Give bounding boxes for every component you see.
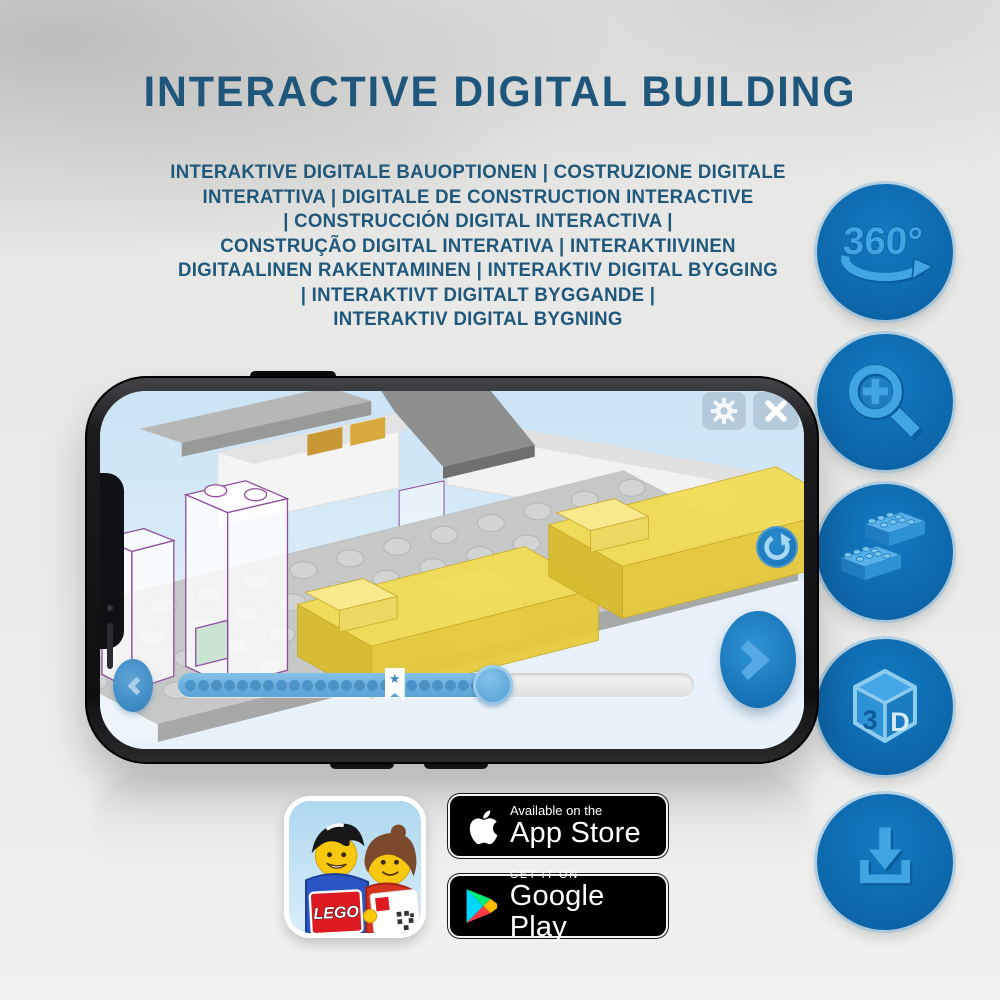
previous-step-button[interactable] xyxy=(113,659,153,712)
cube-face-3: 3 xyxy=(862,705,877,735)
chevron-left-icon xyxy=(122,673,144,699)
progress-dot xyxy=(458,680,469,691)
progress-dot xyxy=(185,680,196,691)
rotate-arrow-icon xyxy=(762,532,792,562)
subtitle-line: | CONSTRUCCIÓN DIGITAL INTERACTIVA | xyxy=(10,210,947,235)
earpiece-speaker xyxy=(107,623,113,669)
front-camera xyxy=(107,605,113,611)
progress-dot xyxy=(276,680,287,691)
progress-dot xyxy=(445,680,456,691)
badge-store-name: Google Play xyxy=(510,881,652,942)
progress-dot xyxy=(354,680,365,691)
progress-dot xyxy=(328,680,339,691)
settings-button[interactable] xyxy=(701,391,747,431)
progress-dot xyxy=(198,680,209,691)
subtitle-line: INTERATTIVA | DIGITALE DE CONSTRUCTION I… xyxy=(10,186,947,211)
phone-notch xyxy=(100,473,124,649)
progress-knob[interactable] xyxy=(473,665,513,705)
progress-dot xyxy=(250,680,261,691)
next-step-button[interactable] xyxy=(720,611,796,708)
progress-dot xyxy=(341,680,352,691)
close-button[interactable] xyxy=(752,391,800,431)
360-rotation-icon: 360° xyxy=(833,200,937,304)
close-icon xyxy=(764,399,788,423)
progress-dot xyxy=(302,680,313,691)
badge-store-name: App Store xyxy=(510,818,641,848)
subtitle-line: INTERAKTIVE DIGITALE BAUOPTIONEN | COSTR… xyxy=(10,161,947,186)
feature-download xyxy=(817,794,953,930)
build-progress-bar[interactable]: ★ xyxy=(178,673,694,697)
app-store-badge[interactable]: Available on the App Store xyxy=(448,794,668,858)
download-icon xyxy=(837,814,933,910)
chevron-right-icon xyxy=(738,634,778,686)
feature-3d: 3 D xyxy=(817,639,953,775)
cube-face-d: D xyxy=(890,707,910,737)
progress-dot xyxy=(211,680,222,691)
subtitle-line: | INTERAKTIVT DIGITALT BYGGANDE | xyxy=(10,284,947,309)
progress-dot xyxy=(432,680,443,691)
google-play-badge[interactable]: GET IT ON Google Play xyxy=(448,874,668,938)
progress-dot xyxy=(419,680,430,691)
marketing-page: INTERACTIVE DIGITAL BUILDING INTERAKTIVE… xyxy=(0,0,1000,1000)
360-label: 360° xyxy=(842,220,924,263)
lego-logo: LEGO xyxy=(313,903,360,923)
subtitle-line: INTERAKTIV DIGITAL BYGNING xyxy=(10,308,947,333)
progress-dot xyxy=(406,680,417,691)
gear-icon xyxy=(711,398,737,424)
lego-app-icon: LEGO xyxy=(284,796,426,938)
feature-bricks xyxy=(817,484,953,620)
google-play-logo-icon xyxy=(464,885,498,927)
minifigures-illustration: LEGO xyxy=(289,801,421,933)
progress-dot xyxy=(263,680,274,691)
subtitle-line: CONSTRUÇÃO DIGITAL INTERATIVA | INTERAKT… xyxy=(10,235,947,260)
progress-dot xyxy=(315,680,326,691)
progress-dot xyxy=(237,680,248,691)
app-screen: ★ xyxy=(100,391,804,749)
apple-logo-icon xyxy=(464,804,498,848)
badge-tagline: Available on the xyxy=(510,804,641,818)
feature-zoom xyxy=(817,334,953,470)
rotate-model-button[interactable] xyxy=(756,526,798,568)
page-title: INTERACTIVE DIGITAL BUILDING xyxy=(20,68,980,117)
feature-360-rotation: 360° xyxy=(817,184,953,320)
3d-cube-icon: 3 D xyxy=(835,657,935,757)
smartphone: ★ xyxy=(85,376,819,764)
progress-dot xyxy=(224,680,235,691)
stacking-bricks-icon xyxy=(835,502,935,602)
progress-dot xyxy=(367,680,378,691)
subtitle-line: DIGITAALINEN RAKENTAMINEN | INTERAKTIV D… xyxy=(10,259,947,284)
progress-fill xyxy=(178,673,493,697)
progress-dot xyxy=(289,680,300,691)
multilingual-subtitle: INTERAKTIVE DIGITALE BAUOPTIONEN | COSTR… xyxy=(0,161,956,333)
zoom-in-magnifier-icon xyxy=(837,354,933,450)
